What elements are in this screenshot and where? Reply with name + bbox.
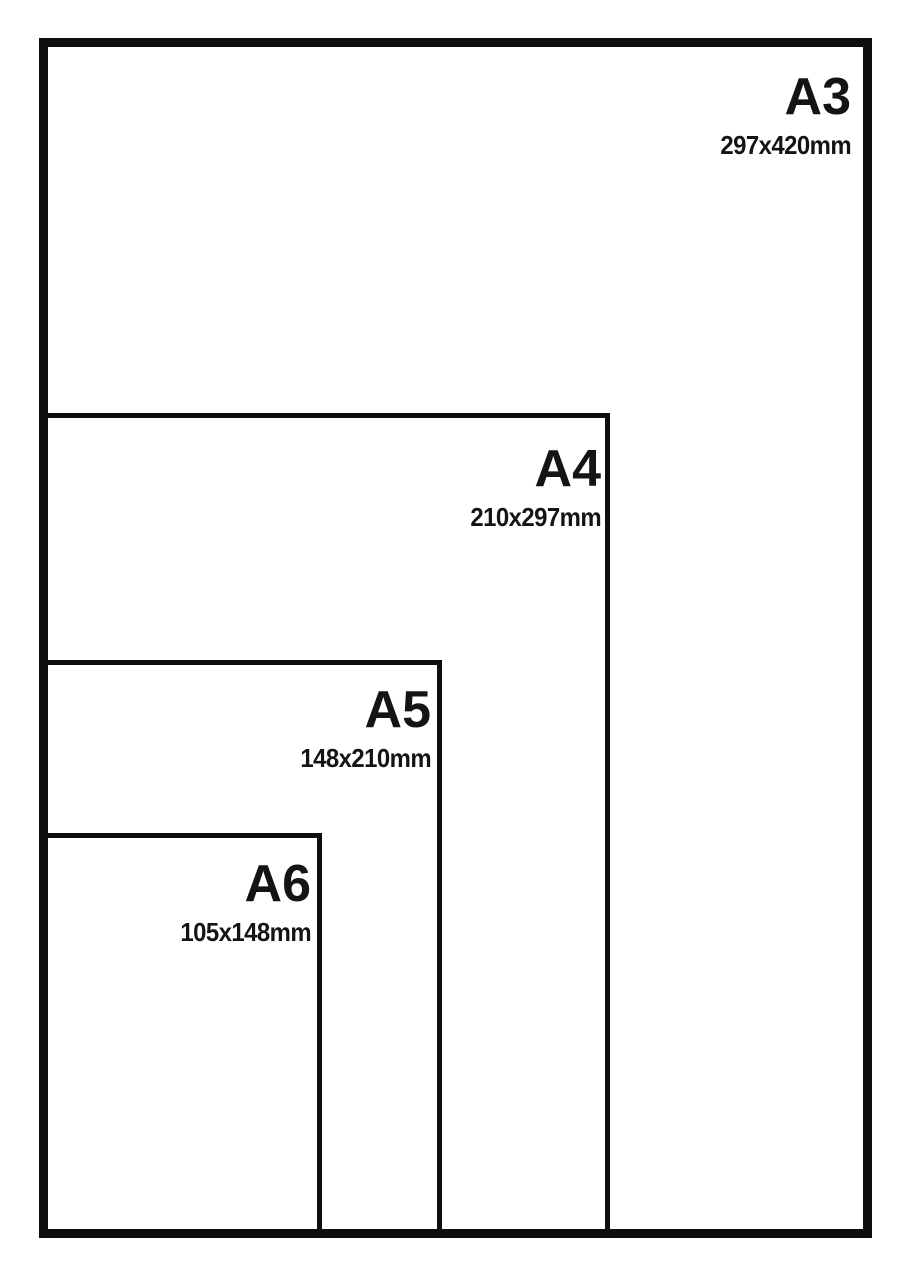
a6-dimensions: 105x148mm [180,919,311,945]
a6-label-group: A6 105x148mm [169,858,311,945]
a4-dimensions: 210x297mm [470,504,601,530]
paper-size-diagram: A3 297x420mm A4 210x297mm A5 148x210mm A… [0,0,905,1280]
a3-label-group: A3 297x420mm [709,71,851,158]
a5-size-name: A5 [289,684,431,736]
a3-size-name: A3 [709,71,851,123]
a5-dimensions: 148x210mm [300,745,431,771]
a4-size-name: A4 [459,443,601,495]
a4-label-group: A4 210x297mm [459,443,601,530]
a5-label-group: A5 148x210mm [289,684,431,771]
a3-dimensions: 297x420mm [720,132,851,158]
a6-size-name: A6 [169,858,311,910]
